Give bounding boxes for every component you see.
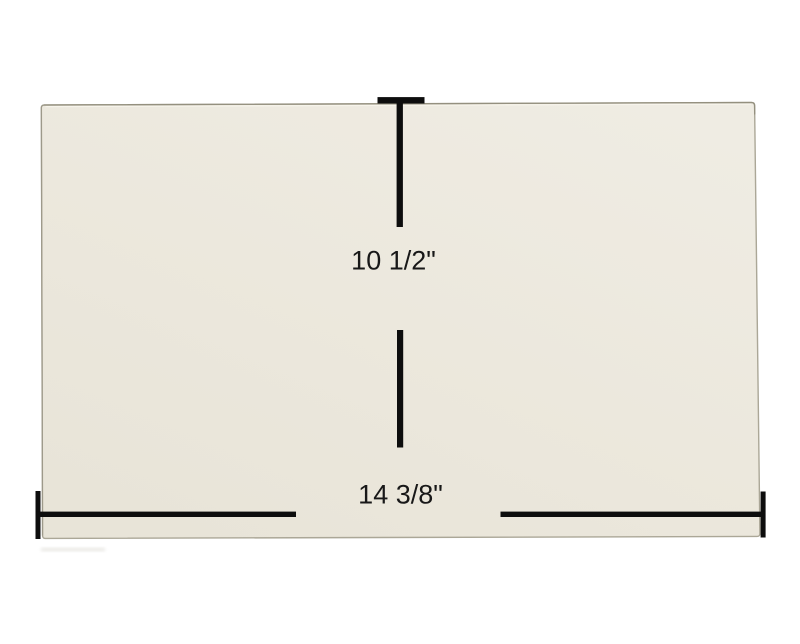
svg-text:14 3/8": 14 3/8" [358,480,443,510]
svg-text:10 1/2": 10 1/2" [351,246,436,276]
